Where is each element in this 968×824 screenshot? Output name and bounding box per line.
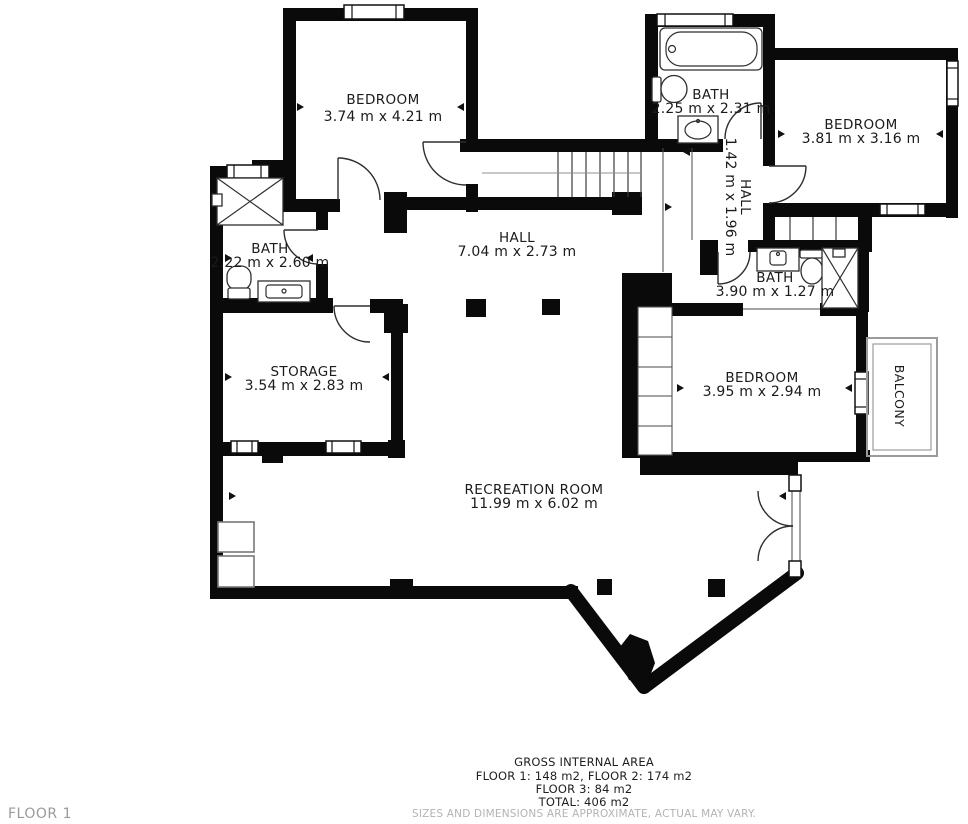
window <box>657 14 733 26</box>
floor3-area-line: FLOOR 3: 84 m2 <box>536 782 633 796</box>
room-label-hall-small: HALL <box>737 179 753 215</box>
room-dims-storage: 3.54 m x 2.83 m <box>245 378 364 394</box>
toilet-icon <box>652 76 687 103</box>
door-bedroom-top-left <box>338 158 380 200</box>
room-dims-hall-main: 7.04 m x 2.73 m <box>458 244 577 260</box>
gross-internal-area-title: GROSS INTERNAL AREA <box>514 755 654 769</box>
french-doors-recreation <box>758 475 801 577</box>
room-dims-bedroom-right: 3.95 m x 2.94 m <box>703 384 822 400</box>
room-dims-bath-right: 3.90 m x 1.27 m <box>716 284 835 300</box>
window <box>880 204 925 215</box>
room-dims-bath-top: 2.25 m x 2.31 m <box>652 101 771 117</box>
footer-summary: GROSS INTERNAL AREA FLOOR 1: 148 m2, FLO… <box>412 755 756 820</box>
window <box>344 5 404 19</box>
room-dims-bath-left: 2.22 m x 2.60 m <box>211 255 330 271</box>
room-dims-recreation: 11.99 m x 6.02 m <box>470 496 598 512</box>
closet-shelves <box>638 307 672 455</box>
door-bath-right <box>718 252 750 284</box>
window <box>326 441 361 453</box>
room-label-bedroom-top-left: BEDROOM <box>346 92 419 108</box>
window <box>947 61 958 106</box>
shower-icon <box>212 178 283 225</box>
staircase-upper <box>790 217 836 240</box>
floorplan-canvas: BEDROOM 3.74 m x 4.21 m BATH 2.25 m x 2.… <box>0 0 968 824</box>
room-dims-bedroom-top-left: 3.74 m x 4.21 m <box>324 109 443 125</box>
room-dims-hall-small: 1.42 m x 1.96 m <box>722 138 738 257</box>
floor-areas-line: FLOOR 1: 148 m2, FLOOR 2: 174 m2 <box>476 769 692 783</box>
window <box>231 441 258 453</box>
sink-icon <box>258 281 310 302</box>
sink-icon <box>678 116 718 143</box>
room-dims-bedroom-top-right: 3.81 m x 3.16 m <box>802 131 921 147</box>
disclaimer-text: SIZES AND DIMENSIONS ARE APPROXIMATE, AC… <box>412 808 756 820</box>
cabinet-icon <box>218 522 254 587</box>
staircase-main <box>482 152 641 197</box>
toilet-icon <box>800 250 824 284</box>
door-bedroom-top-right <box>769 166 806 203</box>
bathtub-icon <box>660 28 762 70</box>
fireplace-mass <box>616 634 655 684</box>
door-bedroom-top-left-hall <box>423 142 466 185</box>
sink-icon <box>757 248 799 271</box>
door-storage <box>334 306 370 342</box>
window <box>227 165 269 178</box>
floorplan-page: BEDROOM 3.74 m x 4.21 m BATH 2.25 m x 2.… <box>0 0 968 824</box>
stair-void-edges <box>663 148 692 272</box>
room-label-balcony: BALCONY <box>892 365 907 427</box>
total-area-line: TOTAL: 406 m2 <box>538 795 630 809</box>
floor-number-label: FLOOR 1 <box>8 806 72 822</box>
